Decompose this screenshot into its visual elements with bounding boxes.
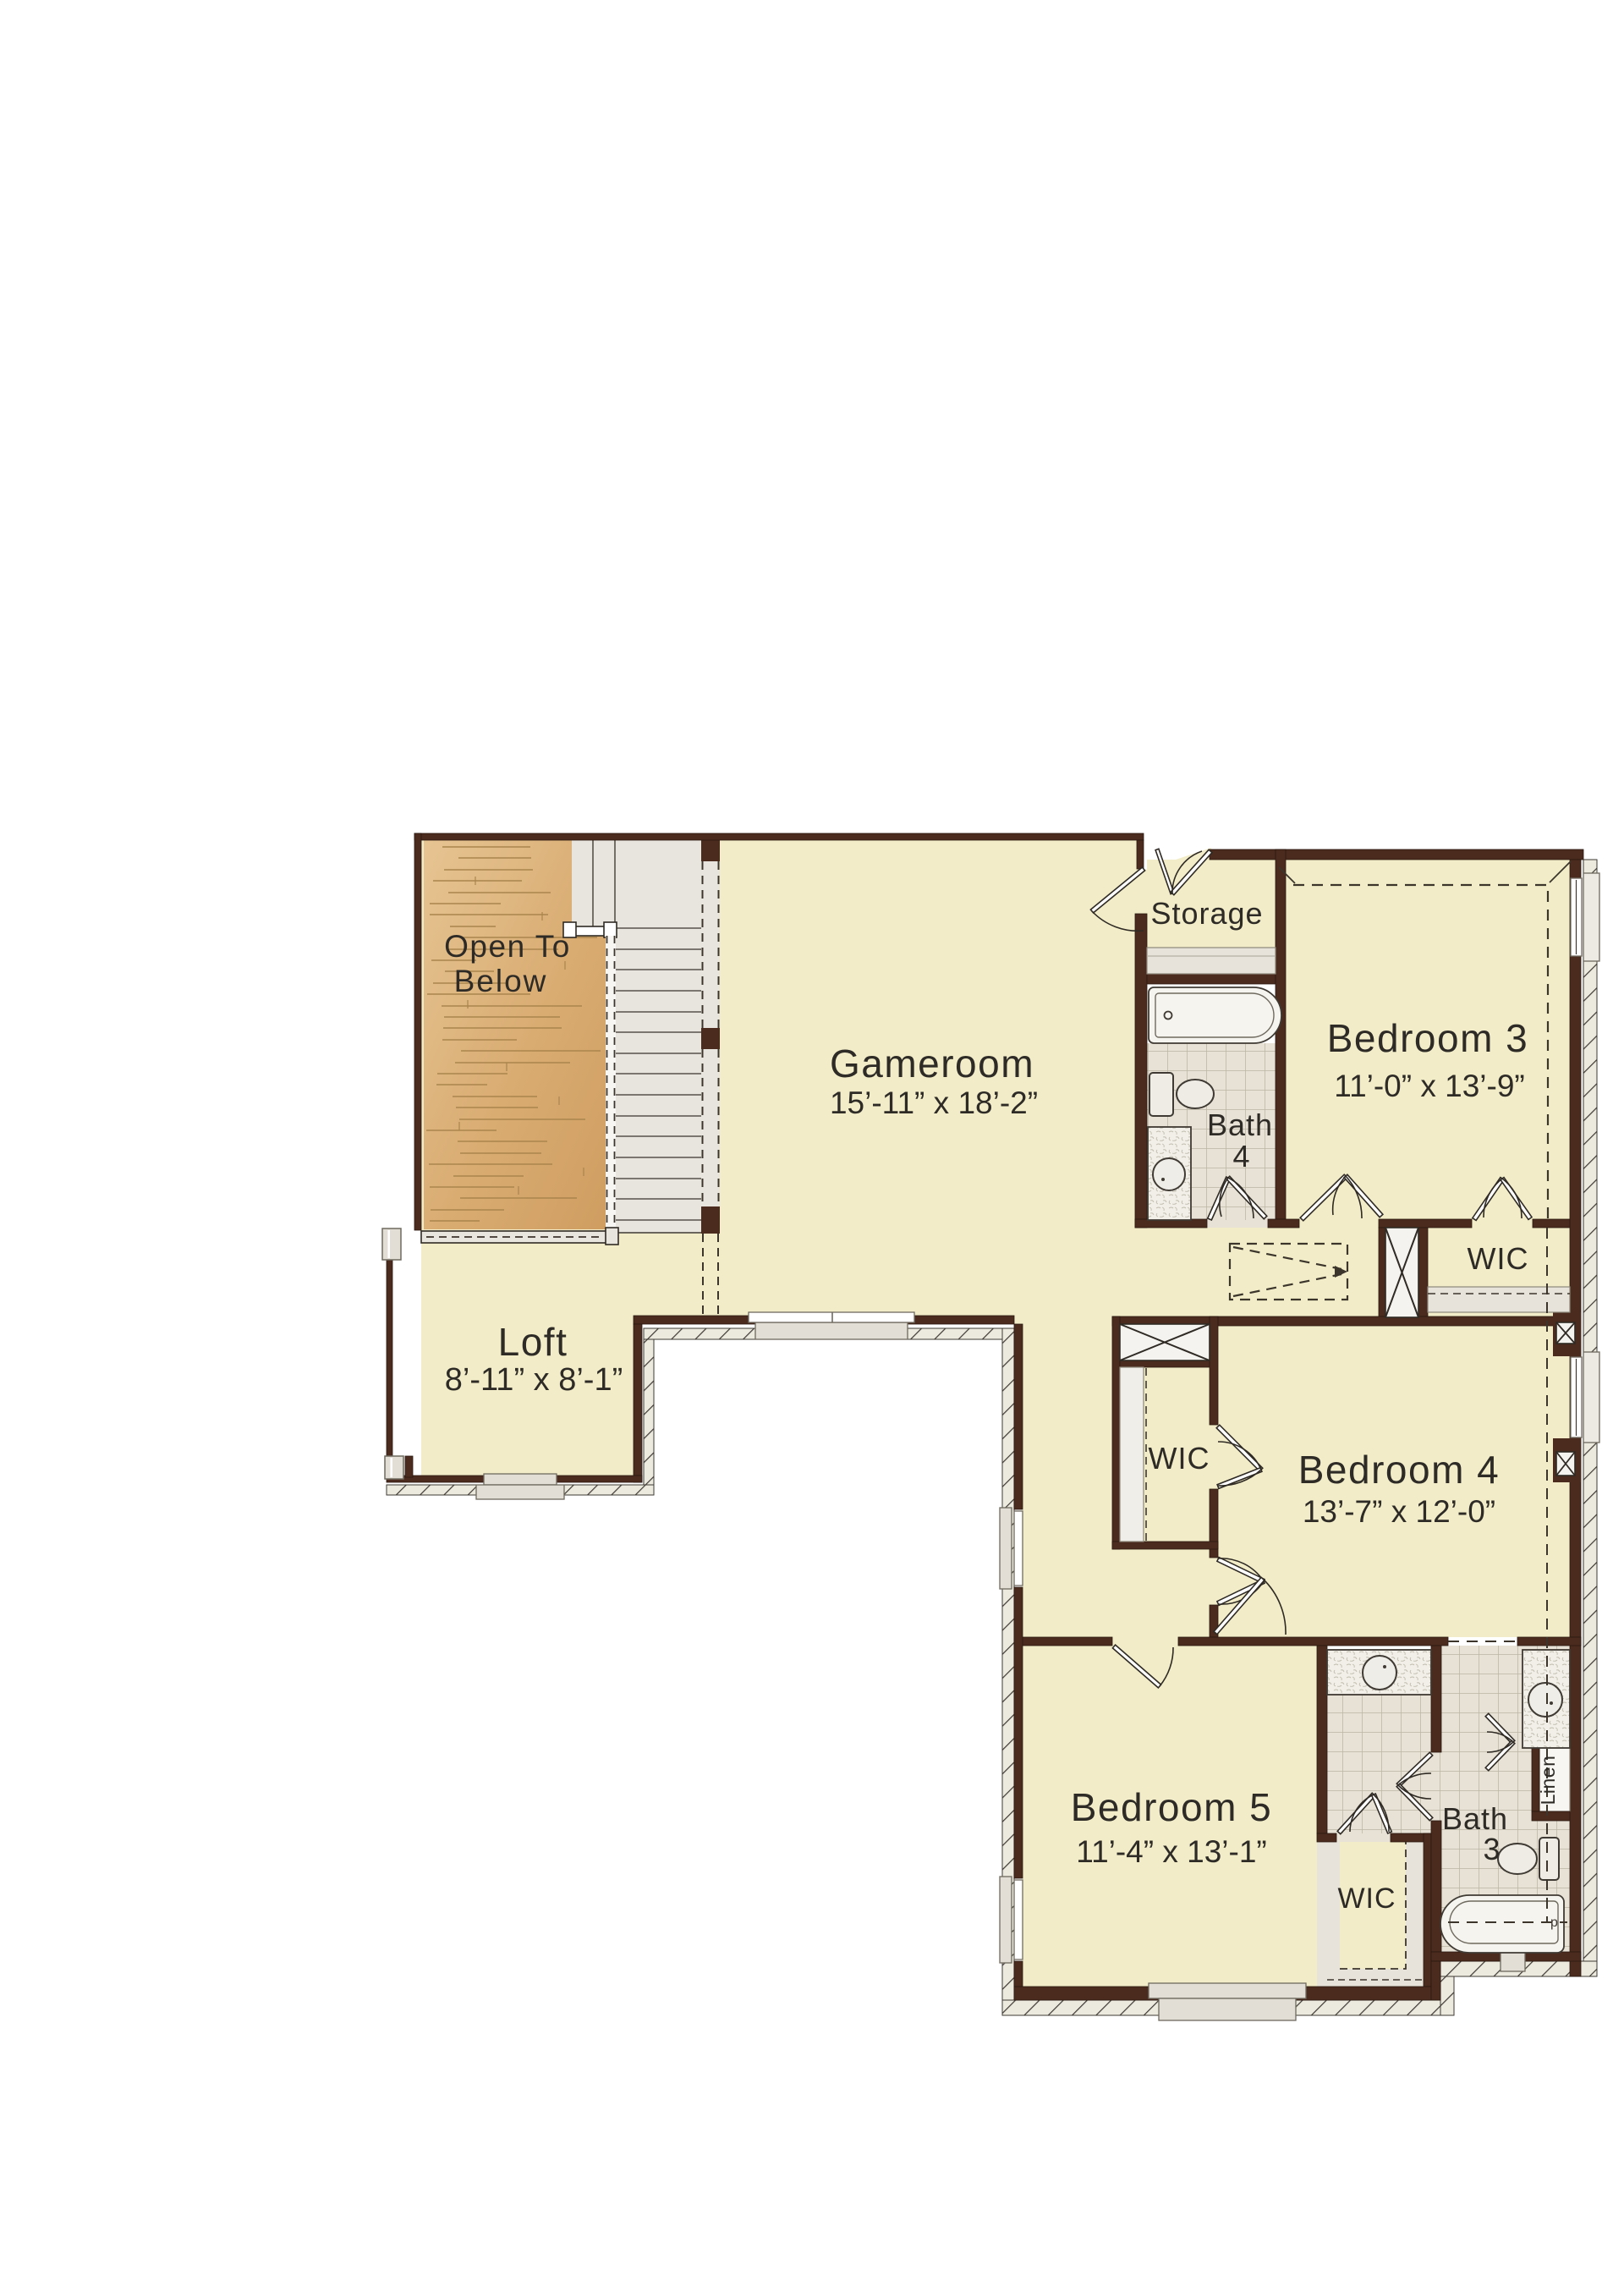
svg-text:4: 4	[1232, 1139, 1250, 1173]
svg-text:8’-11” x 8’-1”: 8’-11” x 8’-1”	[445, 1362, 623, 1398]
svg-text:WIC: WIC	[1468, 1241, 1529, 1276]
svg-text:11’-4” x 13’-1”: 11’-4” x 13’-1”	[1076, 1834, 1267, 1869]
svg-text:Below: Below	[454, 964, 548, 998]
svg-text:Gameroom: Gameroom	[830, 1042, 1034, 1086]
svg-text:Storage: Storage	[1150, 896, 1263, 931]
svg-text:WIC: WIC	[1149, 1441, 1210, 1476]
svg-text:13’-7” x 12’-0”: 13’-7” x 12’-0”	[1303, 1494, 1495, 1529]
svg-text:Bedroom 5: Bedroom 5	[1071, 1785, 1273, 1829]
svg-text:WIC: WIC	[1337, 1883, 1396, 1915]
svg-text:15’-11” x 18’-2”: 15’-11” x 18’-2”	[830, 1086, 1038, 1120]
svg-text:11’-0” x 13’-9”: 11’-0” x 13’-9”	[1334, 1069, 1525, 1103]
svg-text:Bath: Bath	[1207, 1108, 1273, 1142]
svg-text:Linen: Linen	[1537, 1756, 1559, 1806]
svg-text:Bedroom 3: Bedroom 3	[1327, 1016, 1529, 1060]
svg-text:Loft: Loft	[498, 1320, 568, 1364]
svg-text:Bath: Bath	[1442, 1801, 1508, 1836]
svg-text:Open To: Open To	[444, 929, 571, 964]
svg-text:3: 3	[1483, 1832, 1501, 1866]
svg-text:Bedroom 4: Bedroom 4	[1298, 1448, 1501, 1492]
